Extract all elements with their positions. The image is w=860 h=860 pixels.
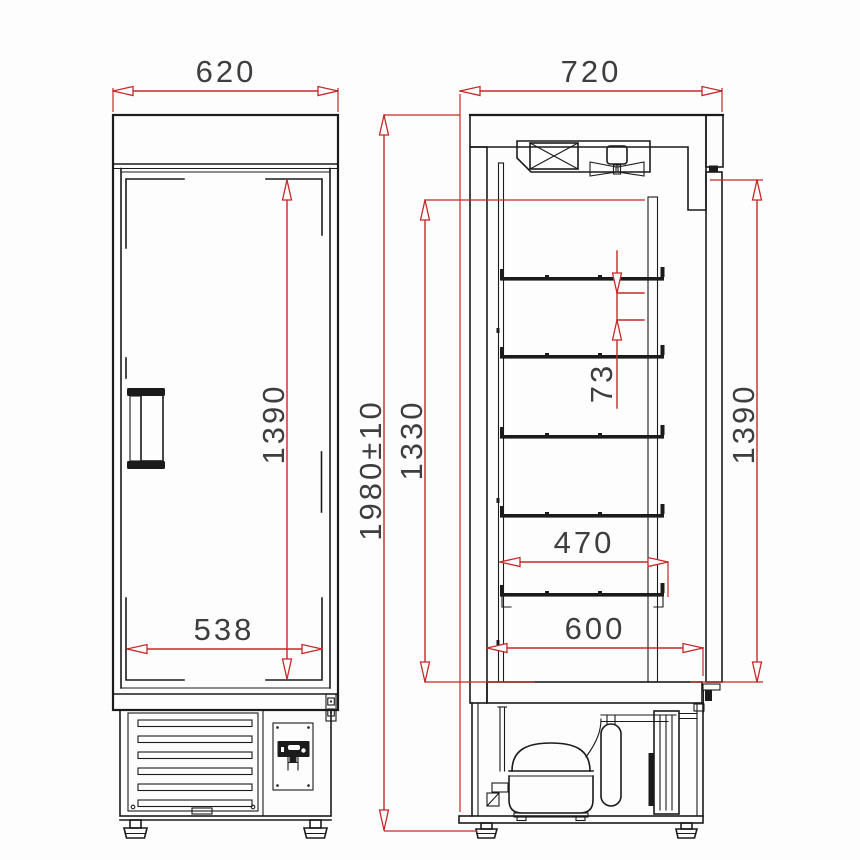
door-handle <box>127 388 165 469</box>
dim-interior-height-label: 1330 <box>394 400 429 481</box>
section-view <box>459 115 723 838</box>
back-insulation <box>470 147 487 703</box>
shelf-bracket <box>502 597 663 607</box>
dim-interior-depth: 600 <box>487 611 703 676</box>
shelf <box>500 425 665 439</box>
bottom-insulation <box>487 682 702 703</box>
dim-door-height-side: 1390 <box>690 180 763 682</box>
top-insulation <box>470 115 706 210</box>
suction-pipe <box>498 707 507 771</box>
shelf <box>500 267 665 281</box>
filter-drier <box>601 715 621 806</box>
dim-interior-depth-label: 600 <box>565 611 626 646</box>
shelf <box>500 504 665 518</box>
dim-overall-height-label: 1980±10 <box>353 399 388 540</box>
panel-corner-mark <box>266 179 322 235</box>
adjustable-foot <box>124 820 327 838</box>
dim-depth-label: 720 <box>561 54 622 89</box>
panel-corner-mark <box>126 598 184 680</box>
dim-shelf-pitch: 73 <box>584 251 644 408</box>
drawing-canvas: 620 720 1980±10 1330 <box>0 0 860 860</box>
door-front-panel <box>126 179 322 680</box>
front-view <box>113 115 338 838</box>
dim-shelf-depth: 470 <box>500 525 668 597</box>
machine-compartment <box>459 682 704 838</box>
bottom-hinge <box>703 684 720 712</box>
dim-door-height-side-label: 1390 <box>726 384 761 465</box>
glass-door-section <box>703 166 722 713</box>
shelf <box>500 345 665 359</box>
dim-interior-height: 1330 <box>394 200 645 682</box>
technical-drawing-page: 620 720 1980±10 1330 <box>0 0 860 860</box>
dim-depth: 720 <box>460 54 722 812</box>
dim-front-width: 620 <box>113 54 338 112</box>
control-panel <box>273 723 313 790</box>
panel-corner-mark <box>266 598 322 680</box>
grille-slat <box>138 720 252 807</box>
adjustable-foot <box>476 823 697 838</box>
shelf-support-rail <box>648 197 658 682</box>
ventilation-grille <box>128 713 258 814</box>
dim-grille-width: 538 <box>127 612 322 654</box>
dim-door-height-front: 1390 <box>256 180 292 679</box>
evaporator-housing <box>517 141 650 172</box>
top-hinge-pin <box>709 166 718 173</box>
dim-front-width-label: 620 <box>196 54 257 89</box>
dim-door-height-front-label: 1390 <box>256 384 291 465</box>
panel-corner-mark <box>126 179 184 248</box>
condenser <box>649 704 705 814</box>
dim-grille-width-label: 538 <box>194 612 255 647</box>
dim-shelf-pitch-label: 73 <box>584 363 619 403</box>
canopy-front <box>706 115 723 167</box>
plinth-front <box>120 694 336 838</box>
shelf <box>500 583 665 607</box>
dim-shelf-depth-label: 470 <box>554 525 615 560</box>
